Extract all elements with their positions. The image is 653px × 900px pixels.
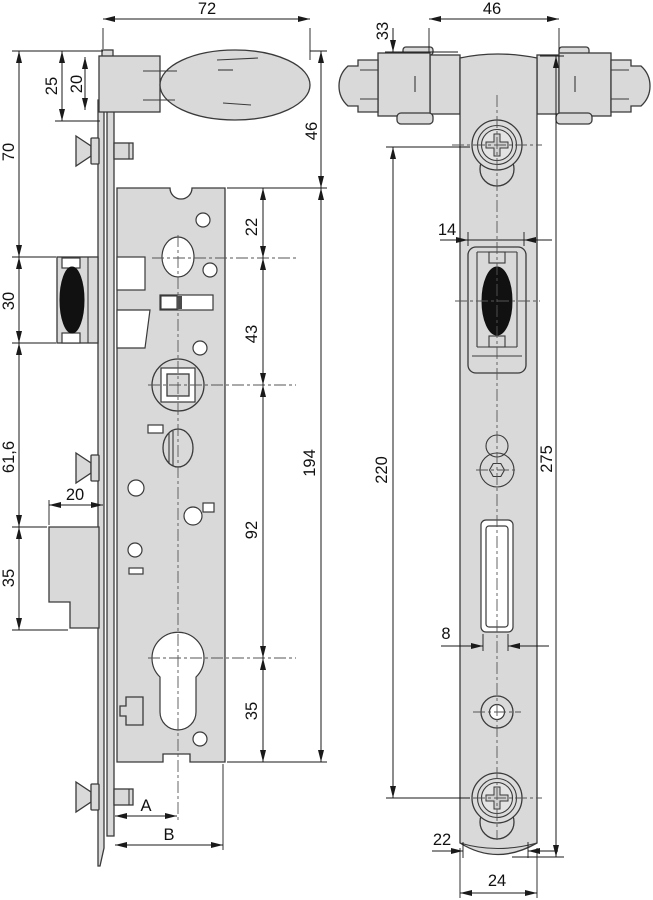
right-rose-front	[559, 53, 611, 116]
dim-label: 46	[303, 122, 321, 140]
screw-stub	[114, 143, 133, 159]
outer-faceplate	[98, 100, 104, 866]
screw-washer	[91, 784, 99, 810]
right-rose-tab-bottom	[556, 113, 592, 124]
front-view: 46 33 220 14 275 8	[339, 0, 650, 898]
hole	[193, 732, 207, 746]
latch-bolt-face	[60, 267, 84, 333]
screw-hole	[193, 341, 207, 355]
left-handle-end	[339, 60, 378, 112]
latch-tail	[117, 310, 150, 348]
technical-drawing-page: 72 25 20 70 46 30	[0, 0, 653, 900]
mortise-lock-drawing: 72 25 20 70 46 30	[0, 0, 653, 900]
dim-label: 72	[198, 0, 216, 18]
dim-label: 61,6	[0, 441, 18, 473]
fixing-screw-middle	[76, 453, 99, 483]
dim-label: 8	[441, 625, 450, 643]
dim-label: 20	[66, 486, 84, 504]
latch-notch-top	[62, 258, 80, 268]
dim-24: 24	[460, 872, 537, 893]
dim-label: 35	[243, 702, 261, 720]
left-hub	[430, 55, 460, 114]
dim-label: 70	[0, 143, 18, 161]
left-rose-tab-bottom	[397, 113, 433, 124]
slot	[203, 503, 214, 512]
dim-20-rose: 20	[68, 57, 86, 110]
dim-label: 220	[373, 456, 391, 484]
dim-label: 33	[374, 22, 392, 40]
dim-label: 30	[0, 292, 18, 310]
right-handle-end	[611, 60, 650, 112]
dim-61-6: 61,6	[0, 343, 19, 527]
dim-220: 220	[373, 147, 393, 798]
dim-35-bolt: 35	[0, 527, 19, 630]
hole	[128, 480, 144, 496]
slide-plate	[160, 295, 213, 310]
dim-label: 25	[43, 77, 61, 95]
dim-B: B	[115, 826, 223, 845]
backplate	[107, 100, 114, 836]
dim-label: 14	[438, 221, 456, 239]
dim-194: 194	[301, 188, 321, 762]
screw-washer	[91, 138, 99, 164]
screw-hole	[203, 263, 217, 277]
side-view: 72 25 20 70 46 30	[0, 0, 327, 866]
dim-46-left: 46	[303, 51, 321, 188]
dim-label: 194	[301, 449, 319, 477]
dim-72: 72	[103, 0, 310, 19]
dim-label: B	[163, 826, 174, 844]
dim-46-right: 46	[429, 0, 559, 19]
screw-head	[76, 782, 91, 812]
dim-35-cylinder: 35	[243, 658, 263, 762]
latch-notch-bottom	[62, 333, 80, 343]
handle-rose	[99, 56, 160, 112]
latch-guide	[117, 257, 145, 290]
latch-bolt-side	[57, 257, 98, 343]
dim-label: 20	[68, 75, 86, 93]
dim-20-throw: 20	[49, 486, 103, 505]
screw-head	[76, 453, 91, 483]
dim-43: 43	[243, 258, 263, 385]
dim-label: A	[140, 797, 151, 815]
dim-label: 22	[243, 218, 261, 236]
dim-label: 22	[433, 831, 451, 849]
dim-30: 30	[0, 257, 19, 343]
screw-washer	[91, 455, 99, 481]
dim-label: 92	[243, 521, 261, 539]
dim-25: 25	[43, 51, 62, 121]
dim-275: 275	[538, 56, 556, 857]
dim-label: 43	[243, 325, 261, 343]
dim-label: 275	[538, 445, 556, 473]
screw-head	[76, 136, 91, 166]
dim-70: 70	[0, 51, 19, 257]
slot	[129, 568, 143, 574]
dim-label: 35	[0, 569, 18, 587]
hole	[184, 507, 202, 525]
dim-33: 33	[374, 22, 393, 52]
spring-slot	[148, 425, 163, 433]
left-rose-front	[378, 53, 430, 116]
hole	[128, 543, 142, 557]
screw-stub	[114, 789, 133, 805]
lever-handle	[99, 50, 310, 120]
dim-label: 46	[483, 0, 501, 18]
dim-label: 24	[488, 872, 506, 890]
handle-knob	[160, 50, 310, 120]
deadbolt-side	[49, 527, 99, 628]
lock-case	[117, 188, 225, 762]
screw-hole	[196, 213, 210, 227]
dim-92: 92	[243, 385, 263, 658]
dim-22-left: 22	[243, 188, 263, 258]
forend-plates	[98, 50, 114, 866]
